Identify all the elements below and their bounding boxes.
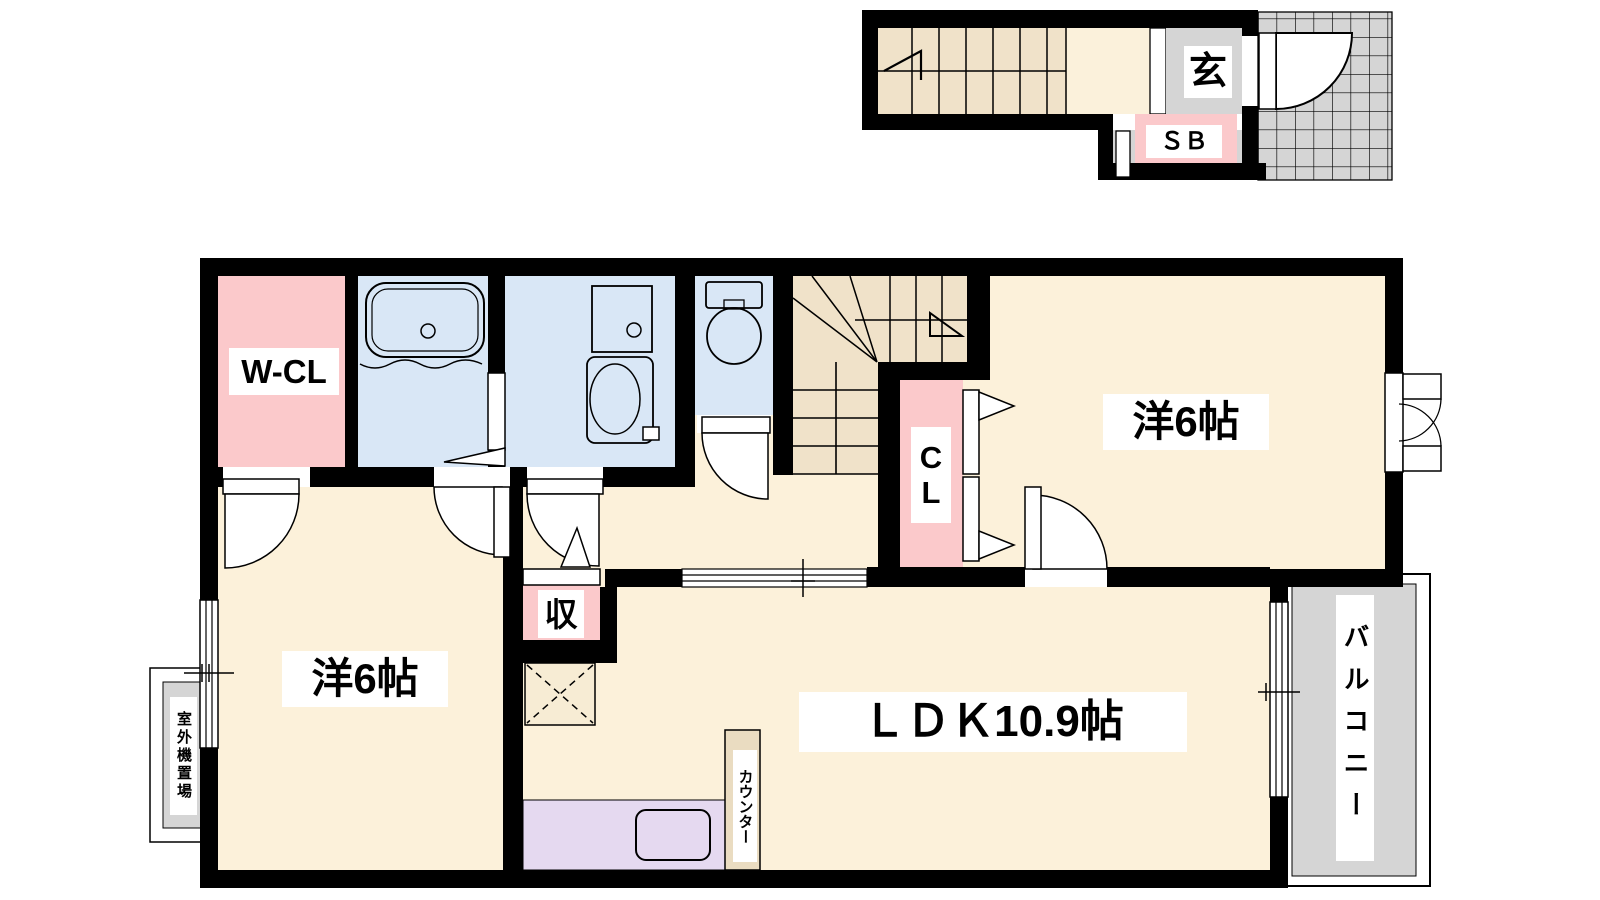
floor-plan-page: 玄 ＳＢ W-CL CL 洋6帖 洋6帖 ＬＤＫ10.9帖 収 カウンター バル… — [0, 0, 1600, 900]
shoe-box-label: ＳＢ — [1146, 125, 1222, 158]
kitchen-counter-label: カウンター — [733, 750, 757, 862]
understairs-door — [1116, 131, 1130, 177]
walk-in-closet-label: W-CL — [229, 348, 339, 395]
bedroom-right-window — [1385, 373, 1441, 472]
genkan-label: 玄 — [1184, 46, 1232, 98]
entrance-inner-door — [1150, 28, 1166, 114]
storage-label: 収 — [538, 590, 584, 638]
ldk-label: ＬＤＫ10.9帖 — [799, 692, 1187, 752]
entrance-door-leaf — [1259, 33, 1276, 109]
balcony-label: バルコニー — [1336, 595, 1374, 861]
upper-landing-floor — [1066, 28, 1150, 114]
closet-label: CL — [911, 427, 951, 523]
bathroom-floor — [358, 276, 488, 467]
bedroom-right-label: 洋6帖 — [1103, 394, 1269, 450]
outdoor-unit-label: 室外機置場 — [170, 697, 197, 815]
bedroom-left-label: 洋6帖 — [282, 651, 448, 707]
stairs-winder-floor — [793, 276, 967, 362]
